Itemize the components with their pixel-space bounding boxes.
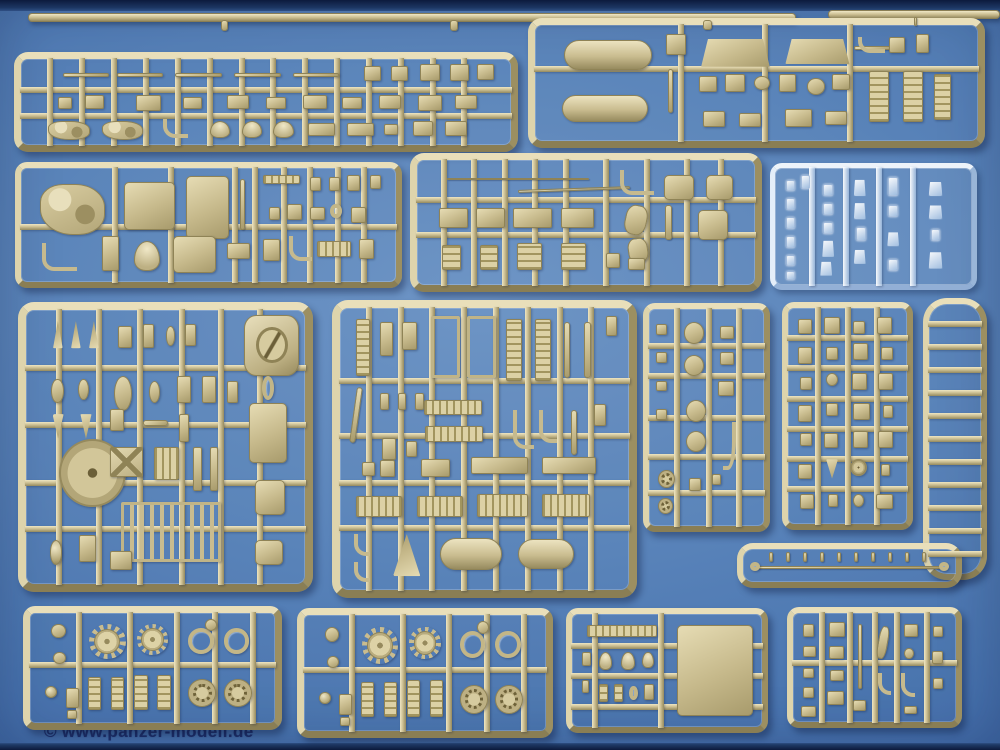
runner-bar-vertical <box>706 308 712 527</box>
molded-part-wheel <box>188 679 216 707</box>
runner-bar-horizontal <box>20 87 512 93</box>
molded-part-combv <box>157 675 170 710</box>
molded-part-rect <box>177 376 191 403</box>
molded-part-rod <box>854 552 858 562</box>
molded-part-plate <box>929 182 943 196</box>
molded-part-combv <box>111 677 124 710</box>
molded-part-combh <box>477 494 528 517</box>
molded-part-ring <box>750 562 760 571</box>
runner-bar-horizontal <box>303 667 547 673</box>
runner-bar-horizontal <box>928 482 982 488</box>
molded-part-sq <box>398 393 407 410</box>
photo-edge-bottom <box>0 743 1000 750</box>
molded-part-sq <box>391 66 408 81</box>
molded-part-sq <box>384 124 399 134</box>
molded-part-rod <box>858 624 862 689</box>
molded-part-sq <box>803 624 814 637</box>
molded-part-dome <box>273 121 294 138</box>
molded-part-rect <box>136 95 161 110</box>
molded-part-rod <box>143 420 168 427</box>
molded-part-circ <box>684 322 705 344</box>
molded-part-ring <box>629 686 638 700</box>
molded-part-rect <box>832 74 850 90</box>
molded-part-rect <box>513 208 552 228</box>
molded-part-rect <box>824 317 841 334</box>
molded-part-rect <box>339 694 352 715</box>
molded-part-rod <box>571 410 577 455</box>
molded-part-sq <box>800 377 812 390</box>
sprue-narrow-mid-right-2 <box>782 302 913 530</box>
molded-part-L <box>289 236 312 261</box>
molded-part-rod <box>447 178 589 181</box>
molded-part-rect <box>202 376 216 403</box>
molded-part-sq <box>370 175 381 189</box>
molded-part-rect <box>703 111 725 127</box>
molded-part-rect <box>175 73 222 78</box>
molded-part-panel <box>249 403 287 463</box>
molded-part-L <box>163 119 188 138</box>
molded-part-sq <box>656 409 668 420</box>
molded-part-rect <box>853 700 866 711</box>
molded-part-xbox <box>110 447 143 477</box>
molded-part-rect <box>118 326 132 348</box>
molded-part-circ <box>325 627 340 642</box>
molded-part-ball <box>45 686 57 698</box>
molded-part-rect <box>803 646 816 657</box>
sprue-large-mid-left <box>18 302 313 592</box>
molded-part-rect <box>876 494 893 509</box>
molded-part-L <box>42 243 78 270</box>
molded-part-sq <box>656 352 668 363</box>
runner-bar-vertical <box>924 612 930 723</box>
runner-bar-horizontal <box>928 413 982 419</box>
molded-part-L <box>858 37 885 53</box>
runner-bar-horizontal <box>928 321 982 327</box>
molded-part-rect <box>110 551 132 570</box>
molded-part-combv <box>506 319 522 381</box>
molded-part-rect <box>303 95 328 109</box>
molded-part-rect <box>359 239 374 260</box>
molded-part-sq <box>933 626 943 637</box>
molded-part-sq <box>853 321 865 334</box>
molded-part-rect <box>786 255 795 267</box>
molded-part-blob <box>48 121 90 140</box>
runner-bar-horizontal <box>339 525 630 531</box>
molded-part-rect <box>888 205 898 217</box>
sprue-small-parts-top-left <box>14 52 518 152</box>
molded-part-sq <box>656 381 668 392</box>
molded-part-circ <box>149 381 160 403</box>
runner-bar-horizontal <box>20 113 512 119</box>
molded-part-rod <box>221 20 229 31</box>
molded-part-combh <box>417 496 463 517</box>
molded-part-rect <box>932 651 943 664</box>
molded-part-sq <box>380 393 389 410</box>
molded-part-rect <box>798 464 812 479</box>
molded-part-sq <box>800 433 812 446</box>
molded-part-circ <box>114 376 132 412</box>
molded-part-rect <box>644 684 654 700</box>
molded-part-arc <box>723 422 737 470</box>
molded-part-blob <box>40 184 106 235</box>
molded-part-sq <box>406 441 416 458</box>
molded-part-rect <box>476 208 505 228</box>
sprue-deck-panel <box>566 608 768 733</box>
molded-part-rect <box>227 381 238 403</box>
molded-part-panel <box>186 176 229 239</box>
molded-part-rect <box>853 403 870 420</box>
molded-part-rect <box>904 706 917 715</box>
runner-bar-vertical <box>894 612 900 723</box>
runner-bar-vertical <box>174 612 180 724</box>
molded-part-L <box>878 673 891 695</box>
molded-part-ring <box>188 628 214 653</box>
molded-part-rect <box>266 97 286 109</box>
molded-part-rect <box>351 207 366 223</box>
molded-part-rect <box>347 123 374 137</box>
molded-part-rect <box>227 243 250 259</box>
molded-part-sq <box>347 175 360 191</box>
molded-part-rect <box>853 343 867 360</box>
molded-part-rect <box>455 95 477 109</box>
molded-part-rect <box>888 259 898 271</box>
molded-part-sq <box>364 66 381 81</box>
molded-part-sq <box>801 175 811 189</box>
molded-part-rod <box>803 552 807 562</box>
molded-part-rect <box>689 478 701 491</box>
runner-bar-vertical <box>446 614 452 732</box>
runner-bar-horizontal <box>928 367 982 373</box>
molded-part-combh <box>425 426 483 442</box>
molded-part-ring <box>460 631 485 658</box>
molded-part-plate <box>854 203 866 219</box>
runner-bar-horizontal <box>29 662 276 668</box>
molded-part-rod <box>665 205 671 240</box>
runner-bar-vertical <box>250 612 256 724</box>
molded-part-rect <box>739 113 761 127</box>
molded-part-rect <box>786 271 795 280</box>
molded-part-circ <box>904 648 914 659</box>
molded-part-rect <box>878 431 892 448</box>
molded-part-L <box>620 170 654 195</box>
molded-part-rect <box>824 433 838 448</box>
molded-part-cage <box>121 502 221 562</box>
molded-part-panel <box>124 182 175 230</box>
molded-part-dome <box>599 652 612 670</box>
molded-part-rect <box>798 347 812 364</box>
molded-part-rect <box>720 352 734 365</box>
molded-part-rect <box>786 180 795 192</box>
molded-part-sq <box>594 404 606 427</box>
molded-part-panel <box>255 540 283 565</box>
molded-part-rect <box>308 123 335 137</box>
molded-part-rect <box>117 73 164 78</box>
molded-part-rect <box>445 121 467 136</box>
runner-bar-horizontal <box>416 197 756 203</box>
molded-part-combv <box>134 675 147 710</box>
runner-bar-vertical <box>281 167 287 283</box>
molded-part-circ <box>166 326 176 345</box>
sprue-narrow-mid-right-1 <box>643 303 770 532</box>
molded-part-gear <box>137 624 169 655</box>
molded-part-L <box>354 534 370 557</box>
molded-part-rect <box>800 494 814 509</box>
molded-part-combh <box>356 496 402 517</box>
runner-bar-vertical <box>819 612 825 723</box>
molded-part-plate <box>822 241 834 257</box>
molded-part-sq <box>420 64 440 81</box>
molded-part-combv <box>535 319 551 381</box>
molded-part-rect <box>66 688 79 708</box>
runner-bar-vertical <box>127 612 133 724</box>
molded-part-rect <box>561 208 595 228</box>
molded-part-rect <box>827 691 843 704</box>
molded-part-turret <box>244 315 300 375</box>
molded-part-combv <box>903 71 923 122</box>
molded-part-rect <box>342 97 362 109</box>
molded-part-panel <box>677 625 753 715</box>
molded-part-rect <box>402 322 416 350</box>
molded-part-plate <box>785 39 849 65</box>
molded-part-combv <box>480 245 499 270</box>
molded-part-sq <box>67 710 77 719</box>
molded-part-dome <box>210 121 231 138</box>
molded-part-combh <box>424 400 482 416</box>
molded-part-wheel <box>495 685 523 714</box>
molded-part-rect <box>582 680 590 694</box>
molded-part-combh <box>263 175 301 184</box>
molded-part-rod <box>668 69 673 113</box>
runner-bar-horizontal <box>339 378 630 384</box>
molded-part-sq <box>798 319 812 334</box>
molded-part-rod <box>564 322 570 378</box>
molded-part-blob <box>102 121 144 140</box>
molded-part-rect <box>829 646 844 659</box>
molded-part-combv <box>614 684 624 702</box>
molded-part-rod <box>756 566 943 569</box>
molded-part-ring <box>939 562 949 571</box>
molded-part-rod <box>584 322 590 378</box>
molded-part-sq <box>310 177 321 191</box>
molded-part-plate <box>929 205 943 219</box>
molded-part-rect <box>193 447 201 491</box>
molded-part-rect <box>628 258 645 271</box>
molded-part-circ <box>477 621 489 634</box>
molded-part-frame <box>467 316 496 378</box>
molded-part-sq <box>826 347 838 360</box>
molded-part-circ <box>53 652 65 664</box>
molded-part-rect <box>85 95 105 109</box>
molded-part-combv <box>561 243 586 271</box>
molded-part-L <box>513 410 533 449</box>
molded-part-rod <box>820 552 824 562</box>
molded-part-rect <box>853 431 867 448</box>
molded-part-dome <box>242 121 263 138</box>
runner-bar-vertical <box>845 307 851 525</box>
molded-part-fan <box>850 459 867 476</box>
molded-part-rect <box>287 204 302 220</box>
molded-part-tri <box>826 459 838 478</box>
molded-part-combv <box>517 243 542 271</box>
runner-bar-horizontal <box>928 344 982 350</box>
molded-part-rect <box>58 97 73 109</box>
molded-part-rod <box>888 552 892 562</box>
molded-part-circ <box>686 431 707 453</box>
runner-bar-vertical <box>232 167 238 283</box>
molded-part-sq <box>883 405 893 418</box>
molded-part-sq <box>933 678 943 689</box>
molded-part-combh <box>154 447 179 480</box>
molded-part-combv <box>407 680 420 717</box>
runner-bar-vertical <box>910 167 916 286</box>
molded-part-plate <box>701 39 770 67</box>
sprue-wheels-b <box>297 608 553 738</box>
molded-part-ball <box>50 540 63 565</box>
molded-part-circ <box>826 373 838 386</box>
molded-part-rect <box>185 324 196 346</box>
runner-bar-vertical <box>521 614 527 732</box>
molded-part-rect <box>418 95 443 110</box>
molded-part-sq <box>881 347 893 360</box>
molded-part-circ <box>853 494 864 507</box>
molded-part-rect <box>63 73 110 78</box>
runner-bar-vertical <box>252 167 258 283</box>
molded-part-dome <box>134 241 160 271</box>
molded-part-sq <box>582 652 592 666</box>
runner-bar-vertical <box>674 308 680 527</box>
molded-part-panel <box>255 480 286 516</box>
molded-part-rect <box>725 74 745 93</box>
molded-part-dome <box>642 652 653 668</box>
molded-part-dome <box>621 652 634 670</box>
molded-part-sq <box>828 494 838 507</box>
molded-part-rod <box>240 179 245 229</box>
molded-part-combv <box>361 682 374 717</box>
molded-part-sq <box>803 687 814 698</box>
molded-part-rect <box>888 177 898 196</box>
molded-part-wheel <box>460 685 488 714</box>
runner-bar-horizontal <box>928 436 982 442</box>
molded-part-rect <box>829 622 845 637</box>
molded-part-rect <box>227 95 249 109</box>
molded-part-rod <box>837 552 841 562</box>
molded-part-wheel <box>658 498 673 514</box>
molded-part-sq <box>477 64 494 79</box>
runner-bar-horizontal <box>928 551 982 557</box>
photo-model-kit-sprues: © www.panzer-modell.de <box>0 0 1000 750</box>
molded-part-combh <box>317 241 351 257</box>
sprue-large-mid-center <box>332 300 637 598</box>
runner-bar-vertical <box>815 307 821 525</box>
molded-part-circ <box>754 76 770 90</box>
molded-part-L <box>901 673 916 697</box>
molded-part-combv <box>356 319 370 375</box>
runner-bar-vertical <box>872 612 878 723</box>
sprue-panels-row2-left <box>15 162 402 288</box>
molded-part-rect <box>183 97 203 109</box>
molded-part-rect <box>413 121 433 136</box>
molded-part-cap <box>518 539 574 569</box>
molded-part-rect <box>380 460 394 477</box>
molded-part-rect <box>471 457 527 474</box>
molded-part-plate <box>887 232 899 246</box>
molded-part-rect <box>110 409 124 431</box>
sprue-tow-cable <box>737 543 962 588</box>
molded-part-frame <box>431 316 460 378</box>
molded-part-rect <box>786 198 795 210</box>
molded-part-sq <box>916 34 929 53</box>
molded-part-sq <box>656 324 668 335</box>
molded-part-circ <box>205 619 217 631</box>
molded-part-combv <box>384 682 397 717</box>
molded-part-rect <box>931 229 941 241</box>
molded-part-rect <box>720 326 734 339</box>
molded-part-rod <box>871 552 875 562</box>
molded-part-ring <box>262 376 275 401</box>
molded-part-rect <box>779 74 797 93</box>
molded-part-combv <box>430 680 443 717</box>
molded-part-rect <box>786 236 795 248</box>
molded-part-rect <box>293 73 340 78</box>
molded-part-ring <box>224 628 250 653</box>
molded-part-wheel <box>224 679 252 707</box>
runner-bar-vertical <box>361 167 367 283</box>
molded-part-rod <box>914 17 917 26</box>
molded-part-rect <box>263 239 280 262</box>
molded-part-combv <box>869 71 889 122</box>
molded-part-panel <box>698 210 728 240</box>
molded-part-rect <box>310 207 325 221</box>
sprue-small-bottom-right <box>787 607 962 728</box>
molded-part-panel <box>706 175 733 200</box>
runner-bar-vertical <box>876 167 882 286</box>
molded-part-L <box>539 410 556 444</box>
runner-bar-horizontal <box>339 480 630 486</box>
molded-part-rod <box>703 20 712 30</box>
molded-part-combv <box>442 245 461 270</box>
runner-bar-vertical <box>843 167 849 286</box>
molded-part-rect <box>234 73 281 78</box>
molded-part-rect <box>379 95 401 109</box>
runner-bar-horizontal <box>928 459 982 465</box>
molded-part-plate <box>820 262 832 276</box>
runner-bar-horizontal <box>928 528 982 534</box>
molded-part-rect <box>718 381 734 396</box>
molded-part-rect <box>856 227 866 241</box>
molded-part-rect <box>852 373 866 390</box>
molded-part-circ <box>51 624 66 638</box>
molded-part-rect <box>699 76 717 92</box>
molded-part-rect <box>421 459 450 477</box>
molded-part-rod <box>922 552 926 562</box>
molded-part-rect <box>439 208 468 228</box>
molded-part-rect <box>823 184 833 196</box>
sprue-clear-parts <box>770 163 977 290</box>
molded-part-sq <box>826 403 838 416</box>
runner-bar-vertical <box>658 613 664 728</box>
molded-part-rect <box>904 624 919 637</box>
molded-part-rect <box>878 373 892 390</box>
molded-part-ring <box>495 631 520 658</box>
molded-part-plate <box>854 250 866 264</box>
molded-part-cap <box>562 95 648 123</box>
molded-part-panel <box>664 175 694 200</box>
runner-bar-horizontal <box>928 505 982 511</box>
molded-part-sq <box>450 64 470 81</box>
molded-part-sq <box>803 668 814 679</box>
molded-part-circ <box>78 379 89 401</box>
runner-bar-vertical <box>847 612 853 723</box>
